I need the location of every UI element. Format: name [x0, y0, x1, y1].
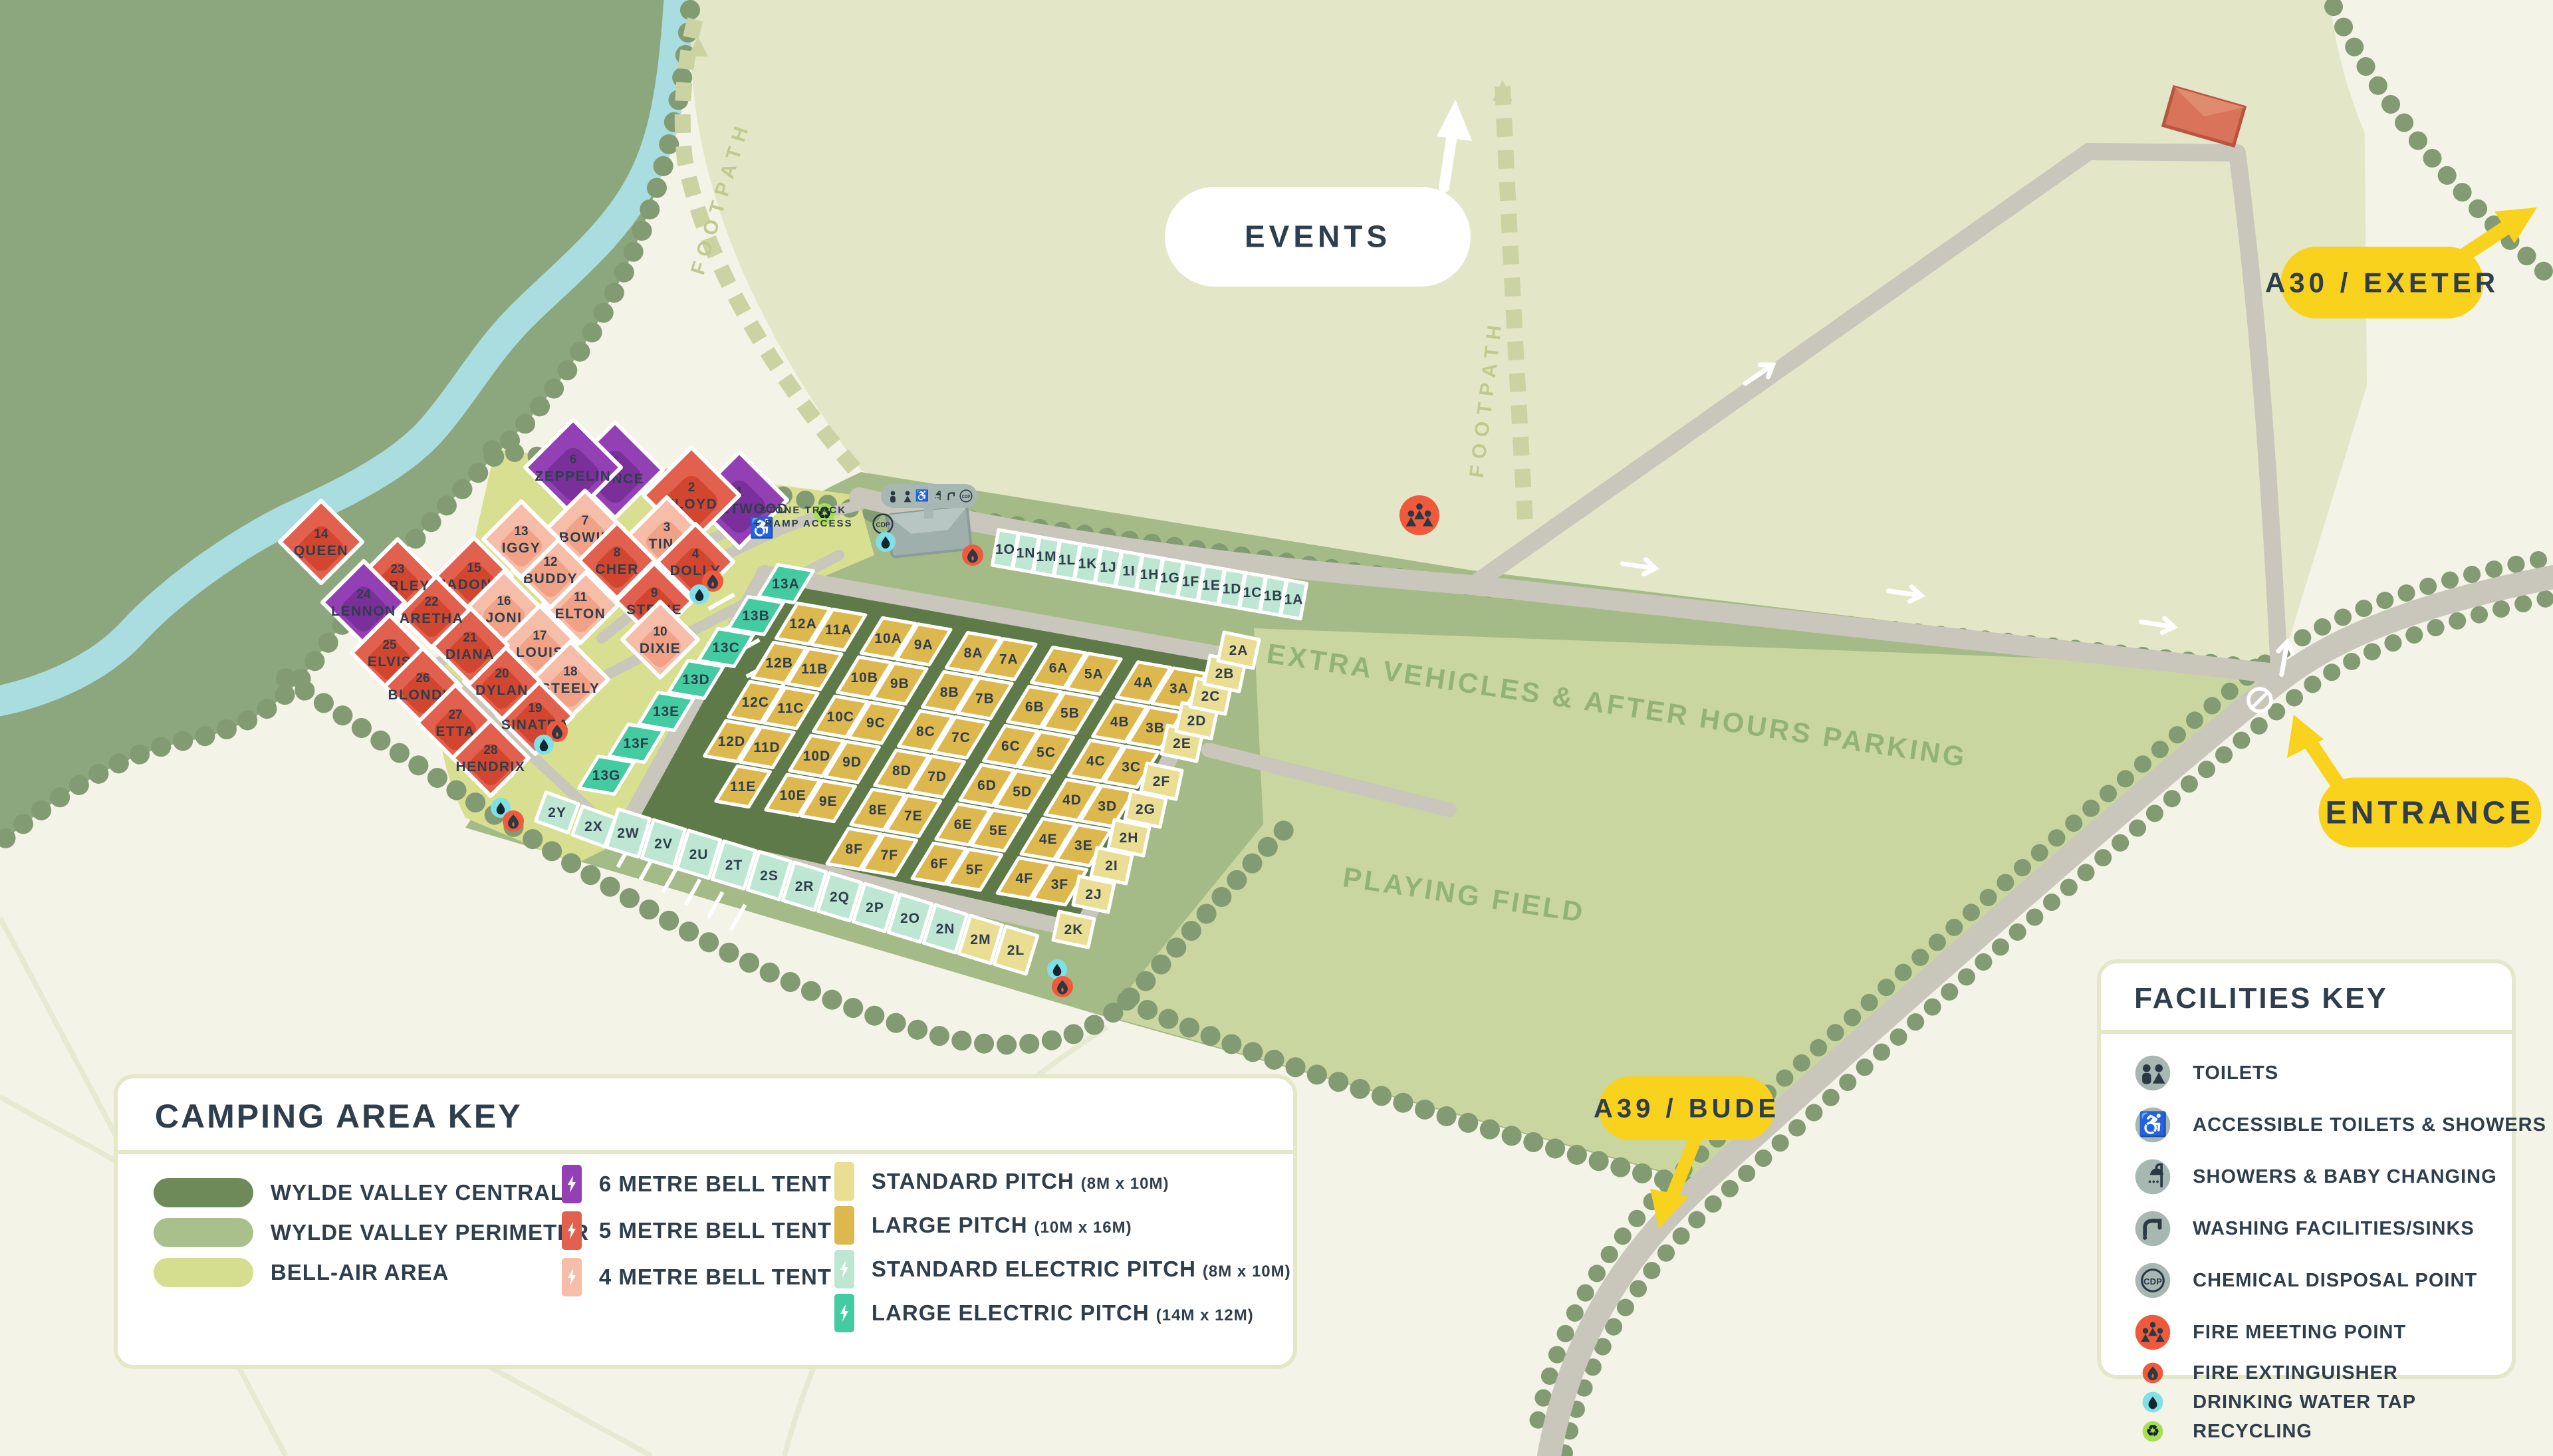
pitch-label: 7A [999, 652, 1019, 667]
pitch-label: 5B [1060, 705, 1080, 721]
pitch-label: 4D [1062, 792, 1082, 808]
pitch-swatch [834, 1162, 854, 1201]
tent-number: 11 [574, 590, 588, 604]
tent-name: HENDRIX [455, 759, 525, 775]
pitch-label: 2P [866, 900, 884, 915]
tent-name: ZEPPELIN [535, 469, 612, 484]
pitch-label: 1E [1202, 578, 1221, 593]
pitch-label: 1J [1100, 560, 1116, 575]
pitch-label: 2K [1064, 922, 1084, 937]
facilities-key-item-fire-meeting: FIRE MEETING POINT [2131, 1312, 2512, 1352]
recycling-icon: ♻ [2131, 1419, 2174, 1444]
tent-number: 7 [582, 514, 589, 528]
standard-pitch-2K[interactable]: 2K [1053, 911, 1094, 947]
tent-label: 4 METRE BELL TENT [599, 1265, 832, 1290]
water-icon [534, 735, 554, 755]
fire-ext-icon [1052, 976, 1073, 997]
pitch-label: 2I [1105, 858, 1118, 874]
pitch-label: 12C [741, 695, 769, 710]
svg-text:♿: ♿ [915, 489, 929, 502]
camping-key-item-4-metre-bell-tent: 4 METRE BELL TENT [562, 1258, 832, 1296]
tent-name: IGGY [502, 541, 541, 556]
pitch-label: 5F [966, 862, 984, 878]
pitch-label: 6B [1025, 699, 1044, 715]
pitch-label: 13G [592, 768, 621, 783]
water-icon [2131, 1390, 2174, 1415]
pitch-label: 8F [845, 842, 863, 857]
tent-label: 6 METRE BELL TENT [599, 1171, 832, 1197]
area-label: WYLDE VALLEY CENTRAL [271, 1180, 564, 1205]
facilities-key-panel: FACILITIES KEY TOILETS♿ACCESSIBLE TOILET… [2097, 959, 2516, 1379]
accessible-icon: ♿ [2135, 1108, 2171, 1143]
tap-icon [2135, 1211, 2171, 1247]
pitch-label: 1L [1058, 552, 1076, 568]
tent-number: 21 [463, 631, 477, 645]
pitch-swatch [834, 1294, 854, 1332]
pitch-label: 2S [760, 868, 779, 884]
tent-number: 28 [483, 743, 497, 757]
pitch-label: 9E [819, 794, 838, 809]
pitch-label: 11C [777, 701, 804, 716]
tent-name: DIXIE [640, 641, 681, 656]
water-icon [689, 584, 709, 604]
pitch-label: 11A [825, 622, 852, 638]
pitch-label: 1F [1182, 574, 1200, 590]
wheelchair-glyph: ♿ [2138, 1110, 2167, 1138]
pitch-label: 2G [1136, 802, 1155, 817]
facility-label: TOILETS [2193, 1062, 2278, 1084]
pitch-label: 9D [842, 755, 862, 770]
pitch-label: 7B [975, 691, 995, 706]
pitch-label: 2X [584, 819, 603, 834]
facility-label: ACCESSIBLE TOILETS & SHOWERS [2193, 1114, 2546, 1136]
tent-number: 13 [514, 525, 528, 539]
fire-ext-icon [2131, 1360, 2174, 1386]
tent-number: 27 [448, 708, 462, 722]
tent-number: 3 [664, 521, 671, 535]
pitch-label: 12B [765, 656, 793, 671]
facilities-key-item-shower: SHOWERS & BABY CHANGING [2131, 1157, 2512, 1197]
pitch-label: 1B [1264, 588, 1283, 604]
area-swatch [154, 1218, 253, 1247]
pitch-label: 9A [914, 637, 933, 652]
pitch-label: 2O [900, 911, 920, 926]
pitch-label: 2T [725, 858, 743, 873]
tent-name: QUEEN [294, 543, 348, 558]
pitch-label: 12A [789, 616, 817, 632]
a30-exeter-badge-label: A30 / EXETER [2265, 267, 2499, 298]
pitch-label: 10B [850, 670, 878, 685]
recycling-icon: ♻ [2143, 1421, 2163, 1442]
stone-track-label: + RAMP ACCESS [754, 518, 853, 529]
pitch-label: 2F [1153, 774, 1171, 789]
stone-track-label: STONE TRACK [760, 505, 846, 516]
camping-key-item-standard-electric-pitch: STANDARD ELECTRIC PITCH(8M x 10M) [834, 1250, 1291, 1288]
pitch-label: 3E [1074, 838, 1093, 853]
facilities-key-item-accessible: ♿ACCESSIBLE TOILETS & SHOWERS [2131, 1105, 2512, 1145]
pitch-label: 2J [1085, 887, 1102, 902]
pitch-label: 6C [1001, 739, 1021, 754]
toilets-icon [2131, 1053, 2174, 1093]
fire-ext-icon [503, 810, 524, 832]
pitch-label: 1M [1036, 549, 1056, 564]
pitch-label: 1D [1223, 581, 1242, 596]
facilities-key-item-fire-ext: FIRE EXTINGUISHER [2131, 1360, 2512, 1386]
cdp-icon: CDP [2135, 1263, 2171, 1298]
camping-key-item-large-electric-pitch: LARGE ELECTRIC PITCH(14M x 12M) [834, 1294, 1291, 1332]
pitch-label: 3B [1146, 721, 1165, 736]
camping-area-key-panel: CAMPING AREA KEY WYLDE VALLEY CENTRALWYL… [114, 1074, 1297, 1368]
pitch-label: 2H [1120, 830, 1139, 846]
camping-key-areas: WYLDE VALLEY CENTRALWYLDE VALLEY PERIMET… [154, 1178, 589, 1287]
facility-label: DRINKING WATER TAP [2193, 1392, 2416, 1413]
pitch-label: 8D [892, 763, 912, 779]
events-bubble-label: EVENTS [1245, 219, 1391, 254]
pitch-label: 3D [1098, 798, 1117, 814]
pitch-label: 1H [1140, 567, 1159, 582]
facility-label: SHOWERS & BABY CHANGING [2193, 1166, 2497, 1188]
facilities-key-item-tap: WASHING FACILITIES/SINKS [2131, 1209, 2512, 1249]
pitch-label: 2U [689, 847, 709, 862]
tent-number: 18 [563, 665, 577, 679]
tent-number: 15 [467, 561, 481, 575]
accessible-icon: ♿ [2131, 1105, 2174, 1145]
tent-name: ETTA [435, 724, 475, 739]
pitch-label: 11D [753, 740, 780, 755]
tent-swatch [562, 1165, 582, 1203]
pitch-label: 9B [890, 676, 910, 691]
camping-key-body: WYLDE VALLEY CENTRALWYLDE VALLEY PERIMET… [118, 1154, 1293, 1363]
camping-key-item-bell-air-area: BELL-AIR AREA [154, 1258, 589, 1287]
tent-name: DYLAN [475, 683, 529, 698]
standard-pitch-2F[interactable]: 2F [1141, 763, 1182, 799]
pitch-dims: (8M x 10M) [1081, 1175, 1169, 1193]
pitch-label: 8C [916, 724, 935, 739]
tent-number: 9 [651, 586, 658, 600]
tent-name: JONI [485, 610, 522, 626]
pitch-label: 13F [623, 736, 649, 751]
pitch-label: 7F [881, 848, 899, 863]
pitch-swatch [834, 1206, 854, 1245]
area-label: WYLDE VALLEY PERIMETER [271, 1220, 589, 1245]
a39-bude-badge-label: A39 / BUDE [1594, 1094, 1780, 1124]
pitch-label: 2Y [548, 805, 566, 820]
pitch-swatch [834, 1250, 854, 1288]
tent-number: 2 [688, 481, 695, 495]
pitch-label: 7D [927, 769, 947, 785]
pitch-label: 12D [718, 734, 746, 749]
cdp-text: CDP [876, 522, 890, 529]
shower-icon [2135, 1159, 2171, 1195]
pitch-label: STANDARD PITCH [872, 1169, 1074, 1193]
cdp-text: CDP [962, 495, 971, 499]
pitch-label: 2C [1201, 689, 1221, 704]
fire-meeting-icon [1399, 495, 1439, 535]
pitch-label: 8E [869, 802, 888, 818]
facility-label: RECYCLING [2193, 1421, 2312, 1443]
tent-label: 5 METRE BELL TENT [599, 1218, 832, 1243]
camping-key-item-wylde-valley-perimeter: WYLDE VALLEY PERIMETER [154, 1218, 589, 1247]
pitch-label: 2D [1187, 713, 1207, 729]
facilities-key-item-water: DRINKING WATER TAP [2131, 1390, 2512, 1415]
fire-meeting-icon [2135, 1315, 2171, 1350]
male-icon [890, 491, 896, 502]
pitch-label: 6A [1049, 660, 1068, 675]
camping-key-tents: 6 METRE BELL TENT5 METRE BELL TENT4 METR… [562, 1165, 832, 1296]
area-label: BELL-AIR AREA [271, 1260, 449, 1285]
pitch-label: 1N [1017, 545, 1036, 560]
pitch-label: 9C [866, 715, 886, 731]
fire-ext-icon [2143, 1363, 2163, 1384]
pitch-label: STANDARD ELECTRIC PITCH [872, 1257, 1196, 1281]
pitch-label: 13A [772, 576, 800, 592]
pitch-label: 6D [977, 778, 997, 793]
pitch-label: 2N [936, 921, 955, 937]
tent-name: ELTON [555, 606, 606, 622]
pitch-label: 2V [654, 836, 673, 852]
pitch-label: 2E [1173, 736, 1191, 751]
pitch-label: 5D [1013, 784, 1032, 799]
standard-pitch-2A[interactable]: 2A [1218, 632, 1259, 668]
tent-number: 16 [497, 594, 511, 608]
accessible-plain-icon: ♿ [915, 489, 929, 502]
pitch-label: 10C [827, 709, 855, 725]
tent-name: ARETHA [400, 611, 464, 626]
pitch-label: 13E [653, 704, 679, 719]
area-swatch [154, 1178, 253, 1207]
entrance-badge-label: ENTRANCE [2326, 795, 2535, 830]
facilities-key-item-recycling: ♻RECYCLING [2131, 1419, 2512, 1444]
facilities-key-title: FACILITIES KEY [2134, 982, 2388, 1015]
pitch-label: 4F [1016, 871, 1034, 886]
pitch-label: 4E [1039, 832, 1058, 847]
tent-number: 20 [495, 667, 509, 681]
facility-label: FIRE MEETING POINT [2193, 1322, 2406, 1344]
pitch-label: 2A [1229, 643, 1249, 658]
pitch-label: 11B [801, 662, 828, 677]
facility-label: FIRE EXTINGUISHER [2193, 1362, 2398, 1384]
tent-number: 10 [653, 625, 667, 639]
tent-number: 4 [692, 547, 699, 561]
tent-number: 22 [424, 595, 438, 609]
pitch-dims: (10M x 16M) [1034, 1219, 1132, 1237]
tent-number: 17 [533, 629, 547, 643]
pitch-label: 2R [795, 879, 814, 894]
pitch-label: 10A [874, 631, 902, 646]
pitch-label: 5C [1036, 745, 1056, 760]
facilities-key-item-toilets: TOILETS [2131, 1053, 2512, 1093]
pitch-label: 3F [1051, 877, 1069, 892]
fire-ext-icon [962, 545, 983, 566]
tap-icon [2131, 1209, 2174, 1249]
camping-key-item-6-metre-bell-tent: 6 METRE BELL TENT [562, 1165, 832, 1203]
facilities-key-item-cdp: CDPCHEMICAL DISPOSAL POINT [2131, 1261, 2512, 1300]
pitch-label: 8B [940, 685, 959, 700]
pitch-label: 13B [742, 608, 770, 624]
pitch-label: 2Q [830, 890, 850, 905]
pitch-label: 1G [1160, 570, 1180, 586]
pitch-label: 8A [964, 646, 983, 661]
pitch-label: 4C [1086, 753, 1106, 769]
pitch-label: 10D [803, 749, 831, 764]
camping-key-title: CAMPING AREA KEY [155, 1098, 523, 1135]
area-swatch [154, 1258, 253, 1287]
pitch-label: 2L [1007, 943, 1025, 958]
camping-key-pitches: STANDARD PITCH(8M x 10M)LARGE PITCH(10M … [834, 1162, 1291, 1332]
camping-key-item-large-pitch: LARGE PITCH(10M x 16M) [834, 1206, 1291, 1245]
pitch-label: 7E [904, 808, 923, 824]
tent-number: 14 [314, 527, 328, 541]
tent-number: 24 [356, 588, 371, 602]
pitch-dims: (8M x 10M) [1203, 1263, 1291, 1280]
pitch-label: 13D [682, 672, 710, 687]
pitch-label: 3A [1169, 681, 1189, 697]
pitch-label: 6F [930, 856, 948, 872]
fire-meeting-icon [2131, 1312, 2174, 1352]
pitch-label: 4A [1134, 675, 1154, 690]
tent-number: 8 [614, 546, 621, 560]
camping-key-item-5-metre-bell-tent: 5 METRE BELL TENT [562, 1211, 832, 1250]
pitch-label: 2M [970, 932, 991, 947]
tent-number: 6 [570, 453, 577, 467]
pitch-label: LARGE ELECTRIC PITCH [872, 1300, 1150, 1325]
tent-swatch [562, 1258, 582, 1296]
tent-number: 23 [390, 562, 404, 576]
shower-icon [2131, 1157, 2174, 1197]
pitch-label: 13C [712, 640, 740, 656]
pitch-dims: (14M x 12M) [1156, 1306, 1254, 1324]
pitch-label: 10E [779, 788, 806, 803]
cdp-icon: CDP [2131, 1261, 2174, 1300]
water-icon [2143, 1392, 2163, 1413]
tent-number: 25 [382, 638, 397, 652]
tent-number: 19 [528, 701, 542, 715]
camping-key-header: CAMPING AREA KEY [118, 1078, 1293, 1154]
pitch-label: 2B [1215, 666, 1235, 681]
tent-swatch [562, 1211, 582, 1250]
tent-number: 26 [416, 671, 429, 685]
facility-label: WASHING FACILITIES/SINKS [2193, 1218, 2475, 1240]
facilities-key-header: FACILITIES KEY [2101, 963, 2512, 1034]
pitch-label: LARGE PITCH [872, 1213, 1028, 1237]
camping-key-item-standard-pitch: STANDARD PITCH(8M x 10M) [834, 1162, 1291, 1201]
tent-name: DIANA [445, 647, 495, 662]
pitch-label: 1A [1284, 592, 1304, 608]
campsite-map-page: 12A12B12C12D11A11B11C11D11E10A10B10C10D1… [0, 0, 2553, 1456]
camping-key-item-wylde-valley-central: WYLDE VALLEY CENTRAL [154, 1178, 589, 1207]
toilets-icon [2135, 1056, 2171, 1091]
pitch-label: 4B [1110, 714, 1130, 729]
pitch-label: 11E [730, 779, 756, 794]
pitch-label: 6E [954, 817, 973, 832]
pitch-label: 1O [995, 542, 1015, 557]
tent-name: BUDDY [523, 571, 578, 586]
pitch-label: 5E [989, 823, 1008, 838]
pitch-label: 7C [951, 730, 971, 745]
recycle-glyph: ♻ [2146, 1422, 2160, 1439]
pitch-label: 5A [1084, 666, 1104, 681]
pitch-label: 3C [1122, 759, 1141, 775]
water-icon [876, 532, 896, 552]
tent-number: 12 [543, 555, 557, 569]
pitch-label: 1I [1122, 563, 1136, 578]
pitch-label: 1K [1078, 556, 1098, 572]
tent-name: CHER [595, 562, 639, 577]
facility-label: CHEMICAL DISPOSAL POINT [2193, 1270, 2477, 1292]
standard-electric-pitch-1A[interactable]: 1A [1281, 580, 1307, 618]
pitch-label: 1C [1243, 585, 1263, 600]
cdp-text: CDP [2143, 1276, 2162, 1286]
facilities-key-list: TOILETS♿ACCESSIBLE TOILETS & SHOWERSSHOW… [2101, 1034, 2512, 1446]
pitch-label: 2W [617, 826, 640, 841]
standard-pitch-2J[interactable]: 2J [1073, 876, 1114, 912]
